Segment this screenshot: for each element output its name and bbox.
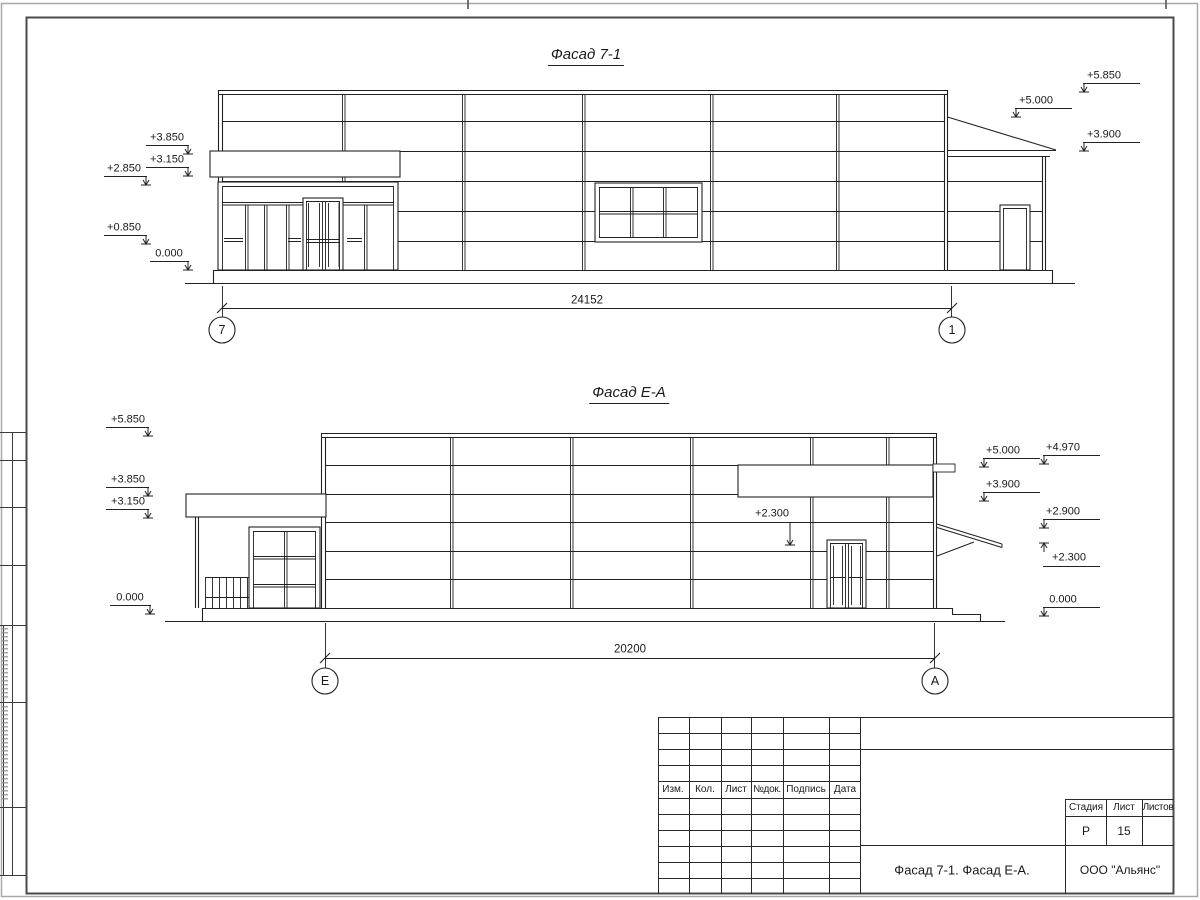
elevation-mark-label: +2.300 — [1052, 553, 1086, 564]
facade-top-drawing — [185, 90, 1075, 343]
elevation-mark-label: +3.900 — [1087, 130, 1121, 141]
elevation-mark-label: 0.000 — [155, 249, 183, 260]
margin-rotated-text — [2, 628, 8, 698]
titleblock-col-list: Лист — [725, 785, 747, 795]
elevation-mark-label: +3.900 — [986, 480, 1020, 491]
titleblock-stage-label: Стадия — [1069, 803, 1103, 813]
elevation-mark-label: +3.850 — [150, 133, 184, 144]
elevation-mark-label: +2.300 — [755, 509, 789, 520]
facade-bottom-drawing — [165, 433, 1005, 694]
elevation-mark-label: +2.850 — [107, 164, 141, 175]
elevation-mark-label: +5.850 — [1087, 71, 1121, 82]
titleblock-col-data: Дата — [834, 785, 856, 795]
drawing-sheet: Фасад 7-1 +3.850 +3.150 +2.850 +0.850 0.… — [0, 0, 1200, 900]
elevation-mark-label: +5.850 — [111, 415, 145, 426]
titleblock-sheet-value: 15 — [1117, 825, 1130, 837]
titleblock-col-ndok: №док. — [753, 785, 781, 795]
axis-bubble-label: 1 — [949, 324, 956, 337]
axis-bubble-label: 7 — [219, 324, 226, 337]
titleblock-sheet-label: Лист — [1113, 803, 1135, 813]
axis-bubble-label: Е — [321, 675, 329, 688]
elevation-mark-label: +5.000 — [1019, 96, 1053, 107]
dimension-label: 24152 — [571, 295, 603, 307]
margin-rotated-text — [2, 706, 8, 802]
titleblock-stage-value: Р — [1082, 825, 1090, 837]
dimension-label: 20200 — [614, 644, 646, 656]
elevation-mark-label: +4.970 — [1046, 443, 1080, 454]
elevation-mark-label: +2.900 — [1046, 507, 1080, 518]
elevation-mark-label: +3.150 — [150, 155, 184, 166]
titleblock-col-kol: Кол. — [695, 785, 715, 795]
elevation-mark-label: +5.000 — [986, 446, 1020, 457]
titleblock-company: ООО "Альянс" — [1080, 864, 1160, 876]
elevation-mark-label: +3.850 — [111, 475, 145, 486]
elevation-mark-label: 0.000 — [116, 593, 144, 604]
titleblock-col-podpis: Подпись — [786, 785, 826, 795]
elevation-mark-label: +3.150 — [111, 497, 145, 508]
titleblock-sheets-label: Листов — [1143, 803, 1174, 813]
axis-bubble-label: А — [931, 675, 939, 688]
elevation-mark-label: +0.850 — [107, 223, 141, 234]
titleblock-doc-title: Фасад 7-1. Фасад Е-А. — [894, 864, 1029, 877]
elevation-mark-label: 0.000 — [1049, 595, 1077, 606]
titleblock-col-izm: Изм. — [662, 785, 683, 795]
facade-top-title: Фасад 7-1 — [548, 46, 624, 66]
facade-bottom-title: Фасад Е-А — [589, 384, 669, 404]
